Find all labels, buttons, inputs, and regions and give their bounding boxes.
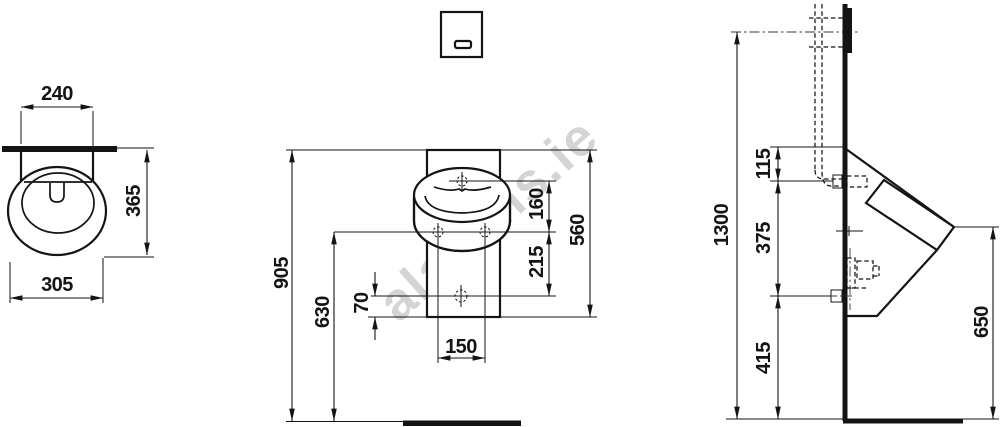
dim-215: 215	[526, 232, 549, 296]
dim-160-label: 160	[526, 188, 548, 220]
dim-650-label: 650	[971, 306, 993, 338]
dim-240-label: 240	[41, 83, 73, 105]
dim-70-label: 70	[351, 292, 373, 314]
dim-375-label: 375	[753, 222, 775, 254]
dim-115: 115	[753, 147, 778, 181]
dim-150-label: 150	[445, 336, 477, 358]
urinal-dimension-drawing: alasens.ie 240 365 305	[0, 0, 1000, 427]
dim-560-label: 560	[567, 214, 589, 246]
dim-70: 70	[351, 272, 375, 340]
sensor-plate-side	[848, 8, 853, 53]
floor-line-front	[403, 421, 521, 427]
dim-215-label: 215	[526, 246, 548, 278]
dim-630-label: 630	[312, 296, 334, 328]
dim-375: 375	[753, 181, 778, 296]
dim-1300: 1300	[711, 32, 737, 419]
dim-630: 630	[312, 232, 334, 421]
dim-150: 150	[438, 336, 485, 358]
dim-305-label: 305	[41, 274, 73, 296]
dim-305: 305	[10, 258, 103, 303]
sensor-plate-front	[441, 12, 482, 57]
dim-1300-label: 1300	[711, 203, 733, 246]
dim-115-label: 115	[753, 148, 775, 179]
dim-365-label: 365	[123, 185, 145, 217]
dim-240: 240	[21, 83, 93, 146]
rim-opening	[866, 180, 954, 250]
dim-415-label: 415	[753, 342, 775, 374]
dim-415: 415	[753, 296, 778, 419]
dim-905-label: 905	[271, 257, 293, 289]
wall-plate-bar	[2, 146, 117, 152]
dim-905: 905	[271, 150, 293, 421]
top-view: 240 365 305	[2, 83, 154, 303]
dim-365: 365	[104, 148, 154, 257]
sensor-window	[455, 41, 471, 48]
drain-outline	[50, 183, 64, 202]
side-view: 1300 115 375 415 650	[711, 4, 999, 421]
concealed-pipe	[809, 4, 845, 186]
dim-160: 160	[526, 181, 549, 232]
technical-drawing-page: alasens.ie 240 365 305	[0, 0, 1000, 427]
urinal-side-profile	[845, 149, 954, 316]
side-fixing-mark	[836, 226, 863, 236]
outlet-detail	[827, 248, 879, 310]
front-view: 905 630 70 150 160 215 56	[271, 12, 597, 426]
dim-650: 650	[971, 227, 993, 419]
